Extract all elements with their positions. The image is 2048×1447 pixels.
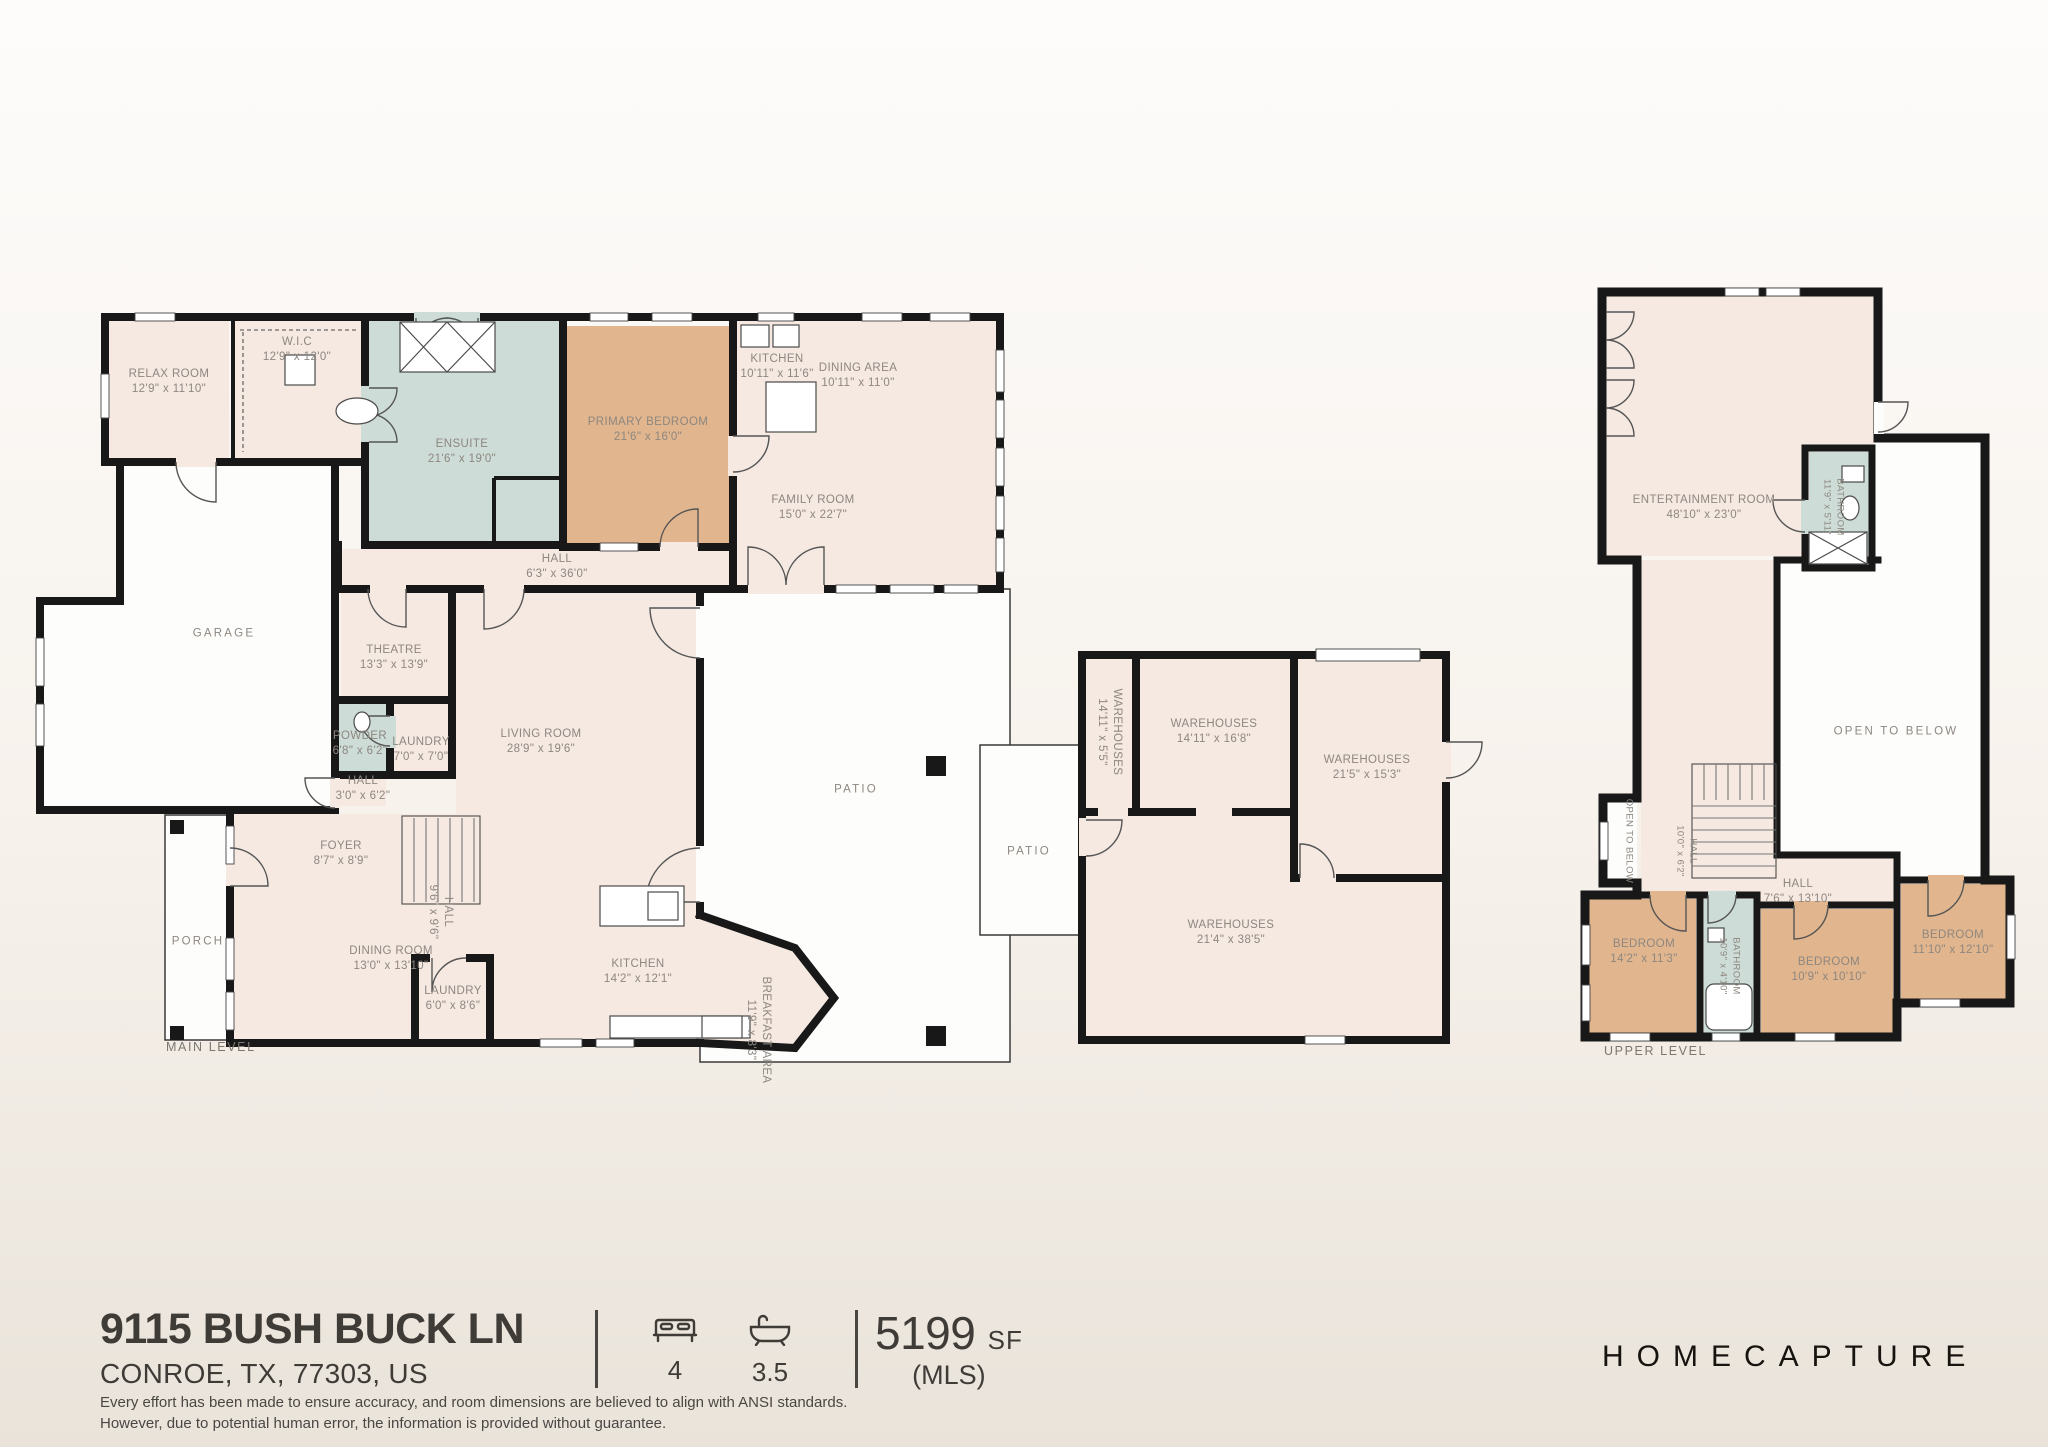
room-label-warehouse-3: WAREHOUSES21'5" x 15'3"	[1324, 753, 1411, 783]
room-label-open-to-below-left: OPEN TO BELOW	[1622, 799, 1635, 884]
room-label-ensuite: ENSUITE21'6" x 19'0"	[428, 437, 496, 467]
room-label-patio-main: PATIO	[834, 782, 878, 797]
room-label-hall-kitchen: HALL9'6" x 9'6"	[425, 885, 455, 940]
room-label-living-room: LIVING ROOM28'9" x 19'6"	[500, 727, 581, 757]
room-label-hall-small: HALL3'0" x 6'2"	[336, 774, 391, 804]
baths-stat: 3.5	[740, 1312, 800, 1388]
disclaimer-line2: However, due to potential human error, t…	[100, 1413, 847, 1434]
room-label-foyer: FOYER8'7" x 8'9"	[314, 839, 369, 869]
room-label-kitchen-lower: KITCHEN14'2" x 12'1"	[604, 957, 672, 987]
baths-count: 3.5	[740, 1357, 800, 1388]
beds-stat: 4	[645, 1312, 705, 1386]
room-label-warehouse-1: WAREHOUSES14'11" x 5'5"	[1094, 689, 1124, 776]
disclaimer-line1: Every effort has been made to ensure acc…	[100, 1392, 847, 1413]
patio-outline	[980, 745, 1082, 935]
room-label-bedroom-2: BEDROOM10'9" x 10'10"	[1791, 955, 1866, 985]
disclaimer: Every effort has been made to ensure acc…	[100, 1392, 847, 1434]
beds-count: 4	[645, 1355, 705, 1386]
room-label-breakfast-area: BREAKFAST AREA11'9" x 8'3"	[743, 976, 773, 1083]
main-level-label: MAIN LEVEL	[166, 1040, 256, 1054]
room-label-warehouse-4: WAREHOUSES21'4" x 38'5"	[1188, 918, 1275, 948]
address-line1: 9115 BUSH BUCK LN	[100, 1308, 524, 1351]
property-address: 9115 BUSH BUCK LN CONROE, TX, 77303, US	[100, 1308, 524, 1390]
patio-pillar	[926, 1026, 946, 1046]
brand-logo: HOMECAPTURE	[1602, 1340, 1978, 1374]
divider	[855, 1310, 858, 1388]
room-label-primary-bedroom: PRIMARY BEDROOM21'6" x 16'0"	[588, 415, 709, 445]
room-label-hall-bedrooms: HALL7'6" x 13'10"	[1764, 877, 1832, 907]
room-label-porch: PORCH	[172, 934, 225, 949]
porch-post	[170, 1026, 184, 1040]
room-label-warehouse-2: WAREHOUSES14'11" x 16'8"	[1171, 717, 1258, 747]
room-label-wic: W.I.C12'9" x 12'0"	[263, 335, 331, 365]
room-label-dining-area: DINING AREA10'11" x 11'0"	[819, 361, 898, 391]
divider	[595, 1310, 598, 1388]
floorplan-sheet: RELAX ROOM12'9" x 11'10" W.I.C12'9" x 12…	[0, 0, 2048, 1447]
window	[1305, 1036, 1345, 1044]
area-unit: SF	[988, 1325, 1023, 1355]
floorplan-drawing	[0, 0, 2048, 1447]
room-label-open-to-below-right: OPEN TO BELOW	[1834, 724, 1959, 739]
room-label-laundry-2: LAUNDRY6'0" x 8'6"	[424, 984, 482, 1014]
room-label-theatre: THEATRE13'3" x 13'9"	[360, 643, 428, 673]
glass-door	[1316, 649, 1420, 661]
room-label-patio-warehouse: PATIO	[1007, 844, 1051, 859]
room-label-powder: POWDER6'8" x 6'2"	[333, 729, 388, 759]
upper-level-label: UPPER LEVEL	[1604, 1044, 1707, 1058]
room-label-bathroom-upper: BATHROOM11'9" x 5'11"	[1820, 478, 1845, 535]
area-value: 5199	[875, 1307, 975, 1359]
room-label-laundry-1: LAUNDRY7'0" x 7'0"	[392, 735, 450, 765]
room-label-dining-room: DINING ROOM13'0" x 13'10"	[349, 944, 433, 974]
room-label-garage: GARAGE	[193, 626, 255, 641]
address-line2: CONROE, TX, 77303, US	[100, 1358, 524, 1390]
patio-pillar	[926, 756, 946, 776]
room-label-hall-stairs: HALL10'0" x 6'2"	[1673, 825, 1698, 877]
bed-icon	[652, 1312, 698, 1344]
room-label-entertainment-room: ENTERTAINMENT ROOM48'10" x 23'0"	[1633, 493, 1776, 523]
room-label-bedroom-3: BEDROOM11'10" x 12'10"	[1912, 928, 1993, 958]
area-stat: 5199 SF (MLS)	[875, 1310, 1023, 1391]
room-label-bathroom-bedrooms: BATHROOM10'9" x 4'10"	[1716, 937, 1741, 994]
porch-outline	[165, 815, 230, 1040]
bathtub-icon	[747, 1312, 793, 1346]
porch-post	[170, 820, 184, 834]
room-label-family-room: FAMILY ROOM15'0" x 22'7"	[771, 493, 854, 523]
warehouse-plan	[980, 649, 1482, 1044]
room-label-relax-room: RELAX ROOM12'9" x 11'10"	[129, 367, 210, 397]
room-label-kitchen-upper: KITCHEN10'11" x 11'6"	[740, 352, 813, 382]
area-source: (MLS)	[875, 1360, 1023, 1391]
room-label-bedroom-1: BEDROOM14'2" x 11'3"	[1610, 937, 1677, 967]
room-label-hall-long: HALL6'3" x 36'0"	[526, 552, 587, 582]
